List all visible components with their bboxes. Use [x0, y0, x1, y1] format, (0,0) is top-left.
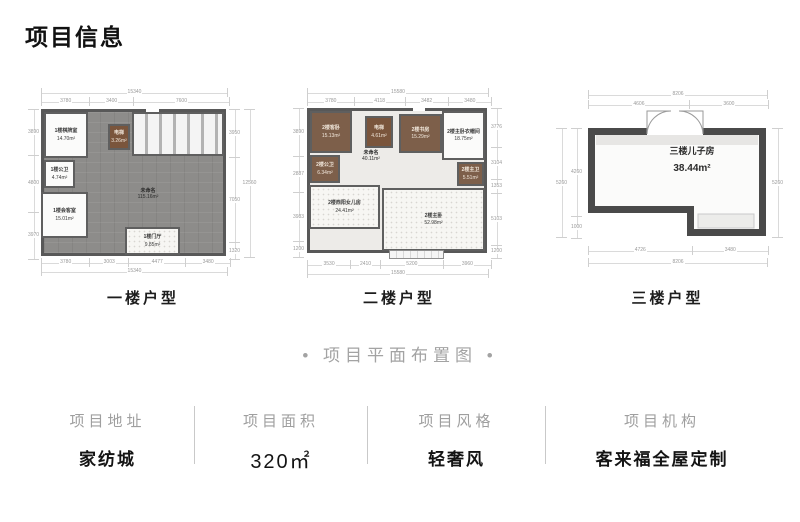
info-style: 项目风格 轻奢风 [369, 410, 544, 470]
room-area: 15.01m² [55, 216, 73, 222]
room-gongwei: 1楼公卫 4.74m² [44, 160, 75, 188]
dim-label: 2410 [359, 262, 372, 267]
dim-segment: 4260 [571, 128, 582, 217]
dim-segment: 4477 [128, 258, 186, 267]
room-name: 2楼西阳女儿房 [328, 200, 361, 206]
dim-label: 4800 [27, 181, 40, 186]
info-value: 家纺城 [20, 445, 195, 470]
room-name: 2楼主卫 [462, 167, 480, 173]
info-label: 项目地址 [20, 410, 195, 431]
dim-segment: 3970 [28, 212, 39, 260]
info-value: 320㎡ [196, 445, 366, 474]
dim-label: 15580 [390, 90, 406, 95]
dim-label: 4118 [373, 99, 386, 104]
room-name: 电梯 [114, 130, 124, 136]
dim-segment: 3104 [491, 147, 502, 180]
dim-label: 3776 [490, 125, 503, 130]
room-area: 52.98m² [424, 220, 442, 226]
room-erzifang: 三楼儿子房 38.44m² [612, 146, 772, 176]
room-zhuwo: 2楼主卧 52.98m² [382, 188, 485, 251]
vertical-divider [194, 406, 195, 464]
room-name: 2楼公卫 [316, 162, 334, 168]
dim-bottom-total: 15340 [41, 267, 226, 276]
room-area: 38.44m² [612, 163, 772, 176]
room-gongwei: 2楼公卫 6.34m² [310, 155, 340, 183]
dim-label: 3780 [324, 99, 337, 104]
dim-segment: 3776 [491, 108, 502, 148]
info-label: 项目风格 [369, 410, 544, 431]
dim-segment: 3950 [229, 109, 240, 158]
dim-label: 3480 [202, 260, 215, 265]
dim-segment: 3780 [41, 258, 90, 267]
floor-plan-3: 8206 4606 3600 5260 4260 1000 5260 三楼儿子房… [550, 88, 785, 273]
room-elevator: 电梯 3.26m² [108, 124, 130, 150]
dim-segment: 3780 [307, 97, 355, 106]
room-zhuwei: 2楼主卫 5.51m² [457, 162, 484, 186]
dim-segment: 3983 [293, 192, 304, 242]
dim-label: 3970 [27, 233, 40, 238]
dim-segment: 5260 [556, 128, 567, 238]
room-area: 5.51m² [463, 175, 479, 181]
caption-floor-3: 三楼户型 [550, 287, 785, 308]
dim-label: 3003 [103, 260, 116, 265]
dim-label: 2887 [292, 172, 305, 177]
dim-label: 3104 [490, 161, 503, 166]
dim-label: 3983 [292, 215, 305, 220]
room-area: 18.75m² [454, 136, 472, 142]
room-name: 2楼主卧 [425, 213, 443, 219]
room-name: 电梯 [374, 125, 384, 131]
dim-label: 4606 [632, 102, 645, 107]
door-opening [413, 107, 425, 111]
room-area: 3.26m² [111, 138, 127, 144]
dim-segment: 3960 [443, 260, 492, 269]
dim-left-segments: 4260 1000 [571, 128, 582, 236]
room-area: 9.85m² [145, 242, 161, 248]
dim-label: 15340 [127, 269, 143, 274]
room-area: 40.11m² [345, 156, 397, 162]
info-value: 轻奢风 [369, 445, 544, 470]
section-subtitle: • 项目平面布置图 • [0, 341, 800, 366]
vertical-divider [367, 406, 368, 464]
dim-segment: 1000 [571, 216, 582, 239]
info-label: 项目面积 [196, 410, 366, 431]
dim-label: 3480 [724, 248, 737, 253]
room-area: 14.70m² [57, 136, 75, 142]
floor-patch [698, 214, 754, 228]
dim-segment: 4800 [28, 155, 39, 213]
dim-top-segments: 4606 3600 [588, 100, 766, 109]
dim-label: 1320 [228, 249, 241, 254]
dim-label: 3890 [292, 130, 305, 135]
dim-label: 8206 [671, 260, 684, 265]
room-area: 15.13m² [322, 133, 340, 139]
caption-floor-1: 一楼户型 [28, 287, 258, 308]
dim-segment: 3480 [692, 246, 769, 255]
floor-plan-1: 15340 3780 3400 7600 3890 4800 3970 3950… [28, 88, 258, 273]
dim-segment: 3890 [28, 109, 39, 156]
dim-bottom-segments: 3780 3003 4477 3480 [41, 258, 226, 267]
dim-segment: 4606 [588, 100, 690, 109]
dim-label: 3780 [59, 260, 72, 265]
dim-segment: 7050 [229, 157, 240, 243]
area-unnamed: 未命名 40.11m² [345, 150, 397, 163]
dim-segment: 8206 [588, 258, 768, 267]
dim-label: 3482 [420, 99, 433, 104]
room-name: 1楼门厅 [144, 234, 162, 240]
dim-label: 1353 [490, 184, 503, 189]
dim-segment: 3600 [689, 100, 769, 109]
room-name: 1楼会客室 [53, 208, 76, 214]
dim-segment: 15580 [307, 88, 489, 97]
dim-label: 5260 [555, 181, 568, 186]
dim-segment: 15340 [41, 267, 228, 276]
dim-right-total: 5260 [772, 128, 783, 236]
dim-right-total: 12560 [244, 109, 255, 256]
info-organization: 项目机构 客来福全屋定制 [547, 410, 777, 470]
room-menting: 1楼门厅 9.85m² [125, 227, 180, 255]
area-unnamed: 未命名 115.16m² [113, 188, 183, 201]
dim-bottom-total: 8206 [588, 258, 766, 267]
dim-segment: 3780 [41, 97, 90, 106]
bay-window [389, 250, 444, 259]
dim-bottom-total: 15580 [307, 269, 487, 278]
dim-label: 1200 [490, 249, 503, 254]
dim-left-segments: 3890 2887 3983 1200 [293, 108, 304, 253]
dim-bottom-segments: 4726 3480 [588, 246, 766, 255]
dim-label: 3530 [322, 262, 335, 267]
room-area: 15.29m² [411, 134, 429, 140]
dim-label: 5103 [490, 217, 503, 222]
dim-label: 3960 [461, 262, 474, 267]
dim-segment: 1200 [293, 241, 304, 258]
dim-label: 5260 [771, 181, 784, 186]
info-area: 项目面积 320㎡ [196, 410, 366, 474]
dim-label: 3890 [27, 130, 40, 135]
dim-segment: 2887 [293, 156, 304, 193]
room-name: 三楼儿子房 [612, 146, 772, 157]
floor-plan-2: 15580 3780 4118 3482 3480 3890 2887 3983… [293, 88, 505, 273]
dim-label: 15580 [390, 271, 406, 276]
room-area: 4.74m² [52, 175, 68, 181]
dim-segment: 15340 [41, 88, 228, 97]
dim-segment: 3480 [185, 258, 231, 267]
dim-segment: 4118 [354, 97, 406, 106]
dim-left-total: 5260 [556, 128, 567, 236]
dim-top-segments: 3780 4118 3482 3480 [307, 97, 487, 106]
dim-segment: 3480 [448, 97, 492, 106]
dim-top-segments: 3780 3400 7600 [41, 97, 226, 106]
info-label: 项目机构 [547, 410, 777, 431]
dim-top-total: 8206 [588, 90, 766, 99]
room-shufang: 2楼书房 15.29m² [399, 114, 442, 153]
dim-segment: 3482 [405, 97, 449, 106]
dim-label: 3480 [463, 99, 476, 104]
room-area: 4.61m² [371, 133, 387, 139]
dim-segment: 7600 [133, 97, 230, 106]
dim-segment: 3890 [293, 108, 304, 157]
dim-label: 3400 [105, 99, 118, 104]
dim-label: 4477 [151, 260, 164, 265]
room-name: 2楼主卧衣帽间 [447, 129, 480, 135]
room-qipai: 1楼棋牌室 14.70m² [44, 112, 88, 158]
room-area: 6.34m² [317, 170, 333, 176]
dim-segment: 1353 [491, 179, 502, 194]
cabinet-strip [596, 135, 758, 145]
room-name: 2楼书房 [412, 127, 430, 133]
dim-segment: 5103 [491, 193, 502, 246]
dim-label: 3780 [59, 99, 72, 104]
building-outline [588, 128, 766, 236]
room-name: 1楼公卫 [51, 167, 69, 173]
room-area: 115.16m² [113, 194, 183, 200]
room-yimaojian: 2楼主卧衣帽间 18.75m² [442, 111, 485, 160]
info-address: 项目地址 家纺城 [20, 410, 195, 470]
dim-segment: 8206 [588, 90, 768, 99]
room-name: 1楼棋牌室 [55, 128, 78, 134]
dim-segment: 1200 [491, 245, 502, 259]
dim-label: 8206 [671, 92, 684, 97]
caption-floor-2: 二楼户型 [293, 287, 505, 308]
dim-label: 7600 [175, 99, 188, 104]
room-nverfang: 2楼西阳女儿房 24.41m² [309, 185, 380, 229]
dim-segment: 3003 [89, 258, 129, 267]
dim-top-total: 15340 [41, 88, 226, 97]
dim-label: 3600 [722, 102, 735, 107]
dim-segment: 15580 [307, 269, 489, 278]
dim-label: 12560 [242, 181, 258, 186]
wardrobe-cabinets [132, 112, 224, 156]
dim-label: 3950 [228, 131, 241, 136]
dim-segment: 2410 [350, 260, 381, 269]
room-elevator: 电梯 4.61m² [365, 116, 393, 148]
dim-label: 1200 [292, 247, 305, 252]
room-kewo: 2楼客卧 15.13m² [310, 111, 352, 153]
room-huike: 1楼会客室 15.01m² [41, 192, 88, 238]
dim-segment: 5200 [380, 260, 444, 269]
dim-label: 15340 [127, 90, 143, 95]
project-info-page: 项目信息 15340 3780 3400 7600 3890 4800 3970… [0, 0, 800, 522]
dim-label: 5200 [405, 262, 418, 267]
dim-segment: 3530 [307, 260, 351, 269]
vertical-divider [545, 406, 546, 464]
page-title: 项目信息 [25, 18, 125, 52]
room-area: 24.41m² [335, 208, 353, 214]
dim-bottom-segments: 3530 2410 5200 3960 [307, 260, 487, 269]
dim-label: 4726 [634, 248, 647, 253]
dim-segment: 3400 [89, 97, 134, 106]
info-value: 客来福全屋定制 [547, 445, 777, 470]
dim-label: 4260 [570, 170, 583, 175]
door-opening [647, 128, 703, 135]
dim-segment: 12560 [244, 109, 255, 258]
dim-left-segments: 3890 4800 3970 [28, 109, 39, 256]
dim-segment: 4726 [588, 246, 693, 255]
dim-right-segments: 3950 7050 1320 [229, 109, 240, 256]
dim-top-total: 15580 [307, 88, 487, 97]
dim-segment: 5260 [772, 128, 783, 238]
dim-label: 7050 [228, 198, 241, 203]
dim-right-segments: 3776 3104 1353 5103 1200 [491, 108, 502, 253]
dim-label: 1000 [570, 225, 583, 230]
room-name: 2楼客卧 [322, 125, 340, 131]
